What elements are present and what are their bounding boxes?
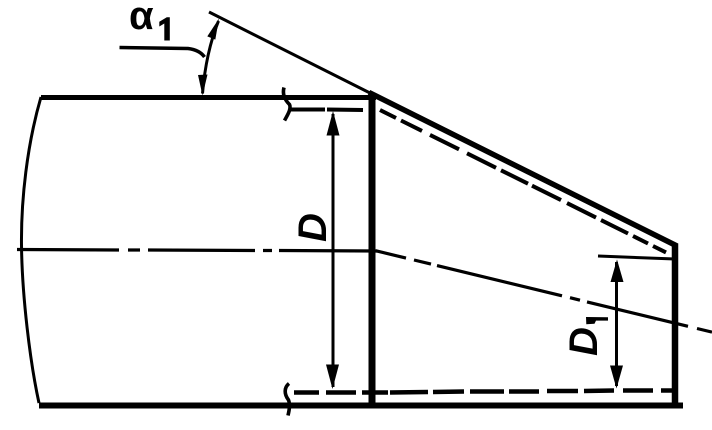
- svg-text:α: α: [129, 0, 154, 38]
- svg-text:D: D: [562, 327, 606, 356]
- svg-text:D: D: [291, 213, 335, 242]
